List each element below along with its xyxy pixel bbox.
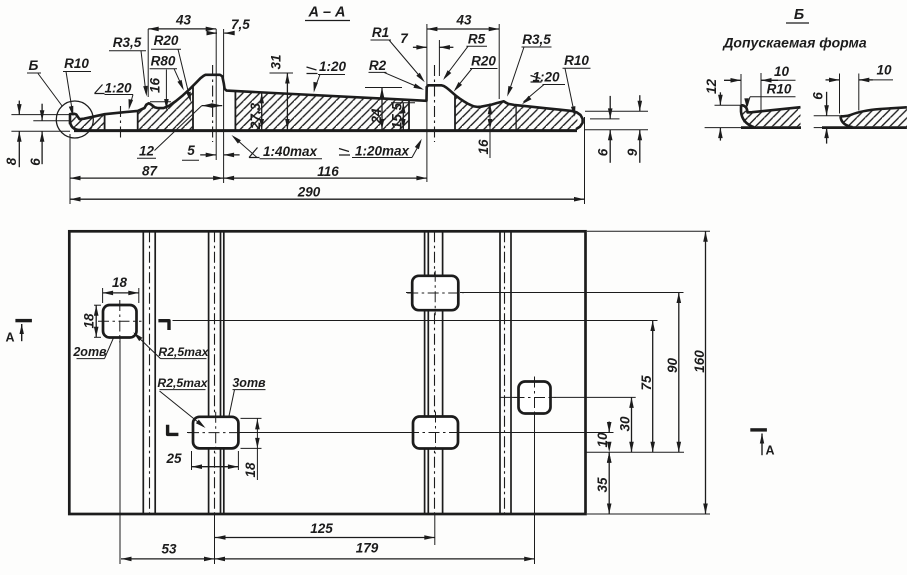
svg-text:А: А: [765, 444, 774, 458]
svg-text:35: 35: [595, 477, 610, 493]
svg-text:53: 53: [161, 542, 177, 557]
svg-text:290: 290: [297, 185, 321, 200]
svg-text:16: 16: [148, 78, 163, 94]
svg-text:А: А: [5, 331, 14, 345]
svg-text:10: 10: [774, 64, 790, 79]
svg-text:3отв: 3отв: [232, 376, 266, 390]
svg-text:5: 5: [187, 143, 195, 158]
svg-text:12: 12: [139, 144, 155, 159]
svg-text:25: 25: [165, 451, 182, 466]
svg-text:R20: R20: [471, 54, 496, 69]
svg-text:75: 75: [639, 375, 654, 391]
svg-text:16: 16: [476, 139, 491, 155]
svg-text:27,3: 27,3: [248, 102, 263, 130]
svg-text:18: 18: [243, 462, 258, 478]
svg-text:9: 9: [625, 148, 640, 156]
svg-text:10: 10: [595, 432, 610, 448]
svg-text:R5: R5: [468, 32, 486, 47]
svg-text:15,5: 15,5: [390, 102, 405, 129]
svg-text:1:20: 1:20: [104, 81, 132, 96]
svg-text:Б: Б: [29, 57, 39, 73]
svg-text:6: 6: [28, 158, 43, 166]
svg-text:Допускаемая форма: Допускаемая форма: [722, 35, 867, 51]
svg-text:7,5: 7,5: [231, 17, 250, 32]
svg-text:2отв: 2отв: [72, 345, 107, 359]
svg-text:24: 24: [369, 108, 384, 125]
svg-text:160: 160: [692, 350, 707, 373]
svg-text:R20: R20: [154, 33, 179, 48]
svg-text:6: 6: [596, 148, 611, 156]
svg-text:8: 8: [4, 157, 19, 165]
svg-text:1:40max: 1:40max: [263, 144, 318, 159]
svg-text:R3,5: R3,5: [522, 32, 551, 47]
svg-text:1:20max: 1:20max: [355, 144, 410, 159]
svg-text:R2: R2: [369, 58, 387, 73]
svg-text:R3,5: R3,5: [113, 35, 142, 50]
svg-text:1:20: 1:20: [319, 59, 347, 74]
svg-text:30: 30: [618, 416, 633, 432]
svg-text:18: 18: [82, 313, 97, 329]
svg-text:43: 43: [455, 13, 472, 28]
svg-text:125: 125: [310, 521, 333, 536]
svg-text:43: 43: [175, 13, 192, 28]
svg-text:116: 116: [317, 164, 339, 179]
svg-text:R10: R10: [767, 82, 792, 97]
svg-text:87: 87: [142, 164, 159, 179]
svg-text:Б: Б: [794, 7, 804, 23]
svg-text:R10: R10: [564, 53, 589, 68]
svg-text:R10: R10: [64, 56, 89, 71]
svg-text:31: 31: [269, 54, 284, 69]
svg-text:10: 10: [876, 63, 892, 78]
svg-text:12: 12: [704, 79, 719, 95]
svg-text:R2,5max: R2,5max: [158, 345, 209, 359]
svg-text:R1: R1: [372, 25, 389, 40]
svg-text:А – А: А – А: [307, 5, 345, 21]
svg-text:R2,5max: R2,5max: [157, 376, 208, 390]
svg-text:R80: R80: [151, 54, 176, 69]
svg-text:18: 18: [112, 275, 128, 290]
svg-text:6: 6: [811, 92, 826, 100]
svg-text:90: 90: [665, 358, 680, 374]
svg-text:179: 179: [356, 541, 379, 556]
